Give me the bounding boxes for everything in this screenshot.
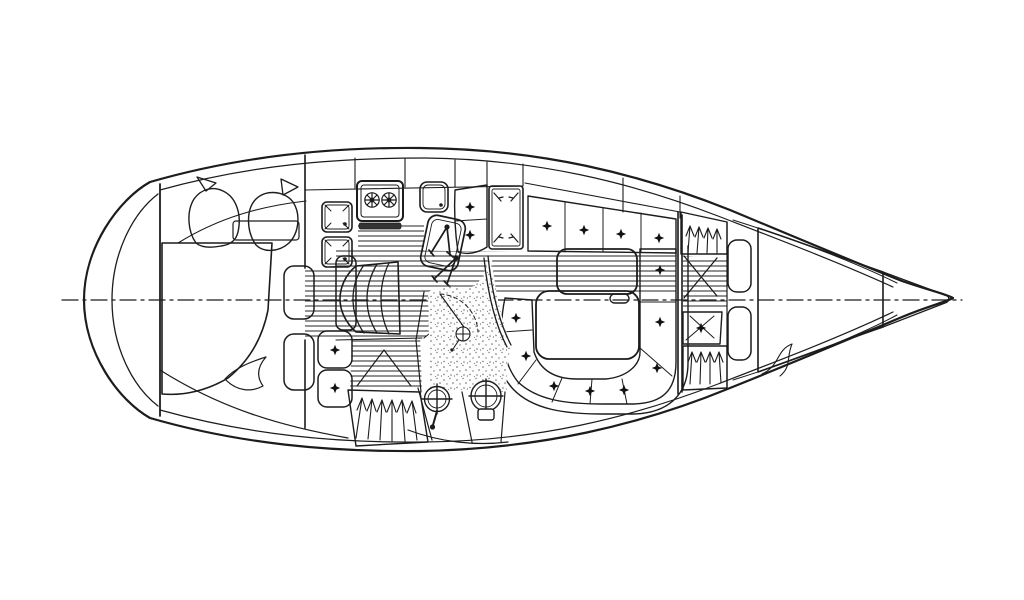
liner-flourish [762,344,792,376]
aft-cabin-shelf-lower [284,334,314,390]
twin-sink-left [322,202,352,232]
hanging-locker-bottom [348,390,428,446]
cabin-sole [305,222,727,390]
port-aft-seats [318,331,352,407]
table-latch-handle [610,294,629,303]
floor-plan-page: Sailboat interior floor plan — top view … [0,0,1024,600]
clothes-hangers [688,352,723,384]
hatch-corner-marks [494,193,518,242]
table-lower-leaf [536,291,639,359]
inner-sheer-bottom [160,312,893,442]
locker-hatch [489,186,523,249]
hanging-locker-forward-port [681,212,727,254]
cushion-dividers [565,202,641,252]
sailboat-floor-plan: Sailboat interior floor plan — top view … [0,0,1024,600]
aft-corridor-sole [305,266,336,340]
forward-shelf-lower [728,307,751,360]
headboard-shelf [233,221,299,240]
clothes-hangers [686,226,721,253]
single-sink [420,182,448,212]
bedding-flap [225,357,266,390]
forward-passage-sole [683,256,727,310]
pillow-right-corner [281,179,298,195]
oven-front [359,223,401,229]
aft-berth-mattress [162,243,272,394]
pillow-left [189,189,239,248]
starboard-settee [528,196,676,253]
clothes-hangers [356,398,417,441]
berth-head-curve [178,201,306,243]
aft-cabin [178,155,314,428]
settee-back-cushions [528,196,676,253]
forward-shelf-upper [728,240,751,292]
